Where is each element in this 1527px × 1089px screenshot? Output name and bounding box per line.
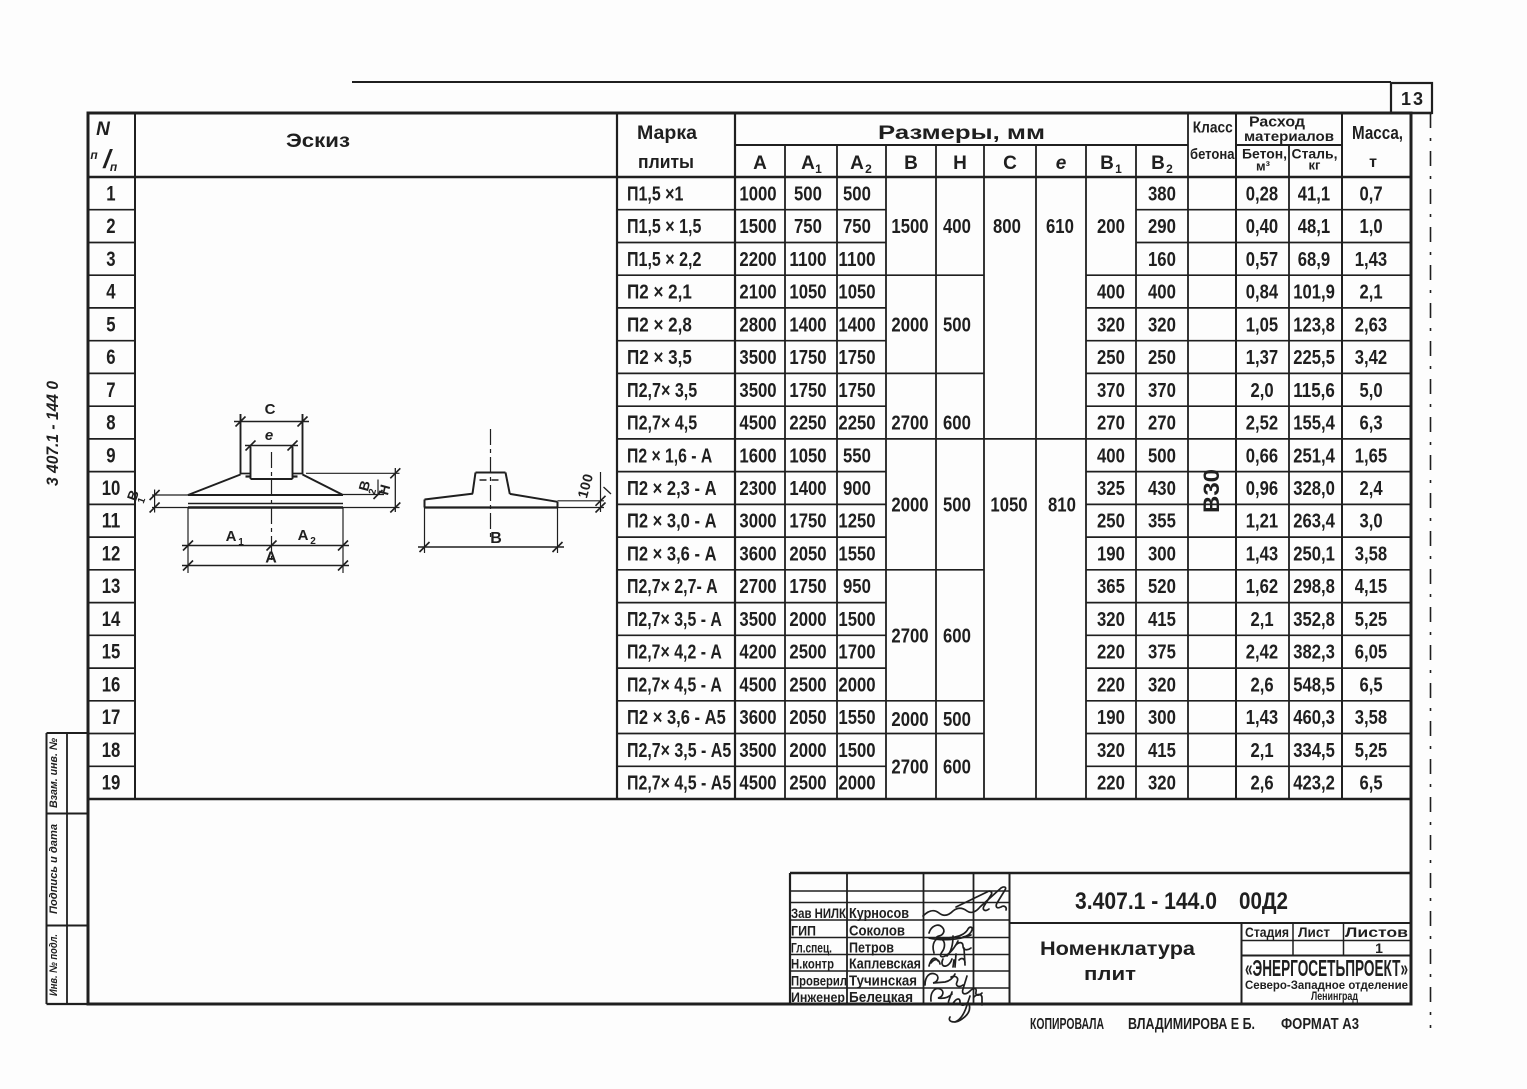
svg-text:Марка: Марка	[637, 123, 697, 144]
svg-text:2,63: 2,63	[1355, 314, 1387, 336]
svg-text:ВЛАДИМИРОВА Е Б.: ВЛАДИМИРОВА Е Б.	[1128, 1016, 1255, 1033]
svg-text:6,3: 6,3	[1360, 413, 1383, 435]
svg-text:П2,7× 3,5: П2,7× 3,5	[627, 380, 697, 402]
svg-text:1750: 1750	[789, 576, 826, 598]
svg-text:П2 × 3,0 - А: П2 × 3,0 - А	[627, 511, 717, 533]
svg-text:2000: 2000	[789, 609, 826, 631]
svg-text:250: 250	[1148, 347, 1176, 369]
svg-text:8: 8	[106, 412, 116, 435]
svg-text:П2 × 3,5: П2 × 3,5	[627, 347, 692, 369]
svg-text:400: 400	[943, 216, 971, 238]
svg-text:423,2: 423,2	[1293, 773, 1335, 795]
svg-text:7: 7	[106, 379, 115, 402]
svg-text:3,58: 3,58	[1355, 544, 1387, 566]
svg-text:материалов: материалов	[1244, 129, 1334, 144]
svg-text:17: 17	[102, 706, 121, 729]
svg-text:5: 5	[106, 313, 116, 336]
svg-text:Листов: Листов	[1345, 924, 1408, 940]
svg-text:1500: 1500	[838, 740, 875, 762]
svg-text:382,3: 382,3	[1293, 642, 1335, 664]
svg-text:320: 320	[1097, 609, 1125, 631]
svg-text:Инженер: Инженер	[791, 989, 845, 1005]
svg-text:12: 12	[102, 543, 121, 566]
svg-text:2,1: 2,1	[1251, 740, 1274, 762]
svg-text:П2,7× 4,5 - А: П2,7× 4,5 - А	[627, 674, 722, 696]
svg-text:4500: 4500	[739, 674, 776, 696]
svg-text:251,4: 251,4	[1293, 445, 1335, 467]
svg-text:750: 750	[794, 216, 822, 238]
svg-text:41,1: 41,1	[1298, 183, 1330, 205]
svg-text:Каплевская: Каплевская	[849, 956, 921, 973]
svg-text:П2,7× 3,5 - А5: П2,7× 3,5 - А5	[627, 740, 731, 762]
svg-text:2000: 2000	[838, 773, 875, 795]
svg-text:14: 14	[102, 608, 121, 631]
svg-text:6,5: 6,5	[1360, 773, 1383, 795]
svg-text:Белецкая: Белецкая	[849, 989, 913, 1006]
svg-text:300: 300	[1148, 544, 1176, 566]
svg-text:2,4: 2,4	[1360, 478, 1384, 500]
svg-text:2000: 2000	[789, 740, 826, 762]
svg-text:160: 160	[1148, 249, 1176, 271]
svg-text:1750: 1750	[838, 380, 875, 402]
svg-text:250: 250	[1097, 511, 1125, 533]
svg-text:0,84: 0,84	[1246, 282, 1279, 304]
svg-text:3500: 3500	[739, 380, 776, 402]
svg-text:2,6: 2,6	[1251, 773, 1274, 795]
svg-text:460,3: 460,3	[1293, 707, 1335, 729]
svg-text:550: 550	[843, 445, 871, 467]
svg-text:П2 × 3,6 - А: П2 × 3,6 - А	[627, 544, 717, 566]
svg-text:2: 2	[310, 536, 316, 547]
svg-text:19: 19	[102, 772, 121, 795]
svg-text:Соколов: Соколов	[849, 923, 905, 940]
svg-text:220: 220	[1097, 773, 1125, 795]
svg-text:2100: 2100	[739, 282, 776, 304]
svg-text:А: А	[226, 528, 237, 545]
svg-text:КОПИРОВАЛА: КОПИРОВАЛА	[1030, 1016, 1104, 1033]
svg-text:370: 370	[1097, 380, 1125, 402]
svg-text:П2,7× 2,7- А: П2,7× 2,7- А	[627, 576, 718, 598]
svg-text:1: 1	[1115, 162, 1122, 176]
svg-text:3: 3	[106, 248, 115, 271]
svg-text:0,40: 0,40	[1246, 216, 1278, 238]
svg-text:П2 × 2,3 - А: П2 × 2,3 - А	[627, 478, 717, 500]
svg-text:13: 13	[102, 575, 121, 598]
svg-text:415: 415	[1148, 740, 1176, 762]
svg-text:2700: 2700	[739, 576, 776, 598]
svg-text:плиты: плиты	[638, 152, 694, 172]
svg-text:ГИП: ГИП	[791, 923, 816, 939]
svg-text:1: 1	[1375, 940, 1383, 956]
svg-text:11: 11	[102, 510, 121, 533]
svg-text:1,21: 1,21	[1246, 511, 1278, 533]
svg-text:2700: 2700	[891, 413, 928, 435]
svg-text:5,25: 5,25	[1355, 609, 1387, 631]
svg-text:320: 320	[1148, 674, 1176, 696]
svg-text:400: 400	[1097, 445, 1125, 467]
svg-text:1750: 1750	[838, 347, 875, 369]
svg-text:2,1: 2,1	[1251, 609, 1274, 631]
svg-text:270: 270	[1148, 413, 1176, 435]
svg-text:А: А	[850, 153, 864, 174]
svg-text:355: 355	[1148, 511, 1176, 533]
svg-text:2800: 2800	[739, 314, 776, 336]
svg-text:1400: 1400	[789, 314, 826, 336]
svg-text:П2,7× 4,5 - А5: П2,7× 4,5 - А5	[627, 773, 731, 795]
svg-text:190: 190	[1097, 707, 1125, 729]
svg-text:е: е	[1056, 153, 1067, 174]
svg-text:1500: 1500	[891, 216, 928, 238]
svg-text:Размеры, мм: Размеры, мм	[878, 123, 1045, 144]
svg-text:бетона: бетона	[1190, 147, 1235, 163]
svg-text:Зав НИЛК: Зав НИЛК	[791, 905, 846, 921]
svg-text:320: 320	[1148, 314, 1176, 336]
svg-text:1050: 1050	[789, 445, 826, 467]
svg-text:100: 100	[574, 472, 596, 500]
svg-text:Подпись и дата: Подпись и дата	[48, 824, 60, 914]
svg-text:610: 610	[1046, 216, 1074, 238]
svg-text:Класс: Класс	[1193, 120, 1233, 137]
svg-text:Стадия: Стадия	[1245, 924, 1289, 940]
svg-text:2,6: 2,6	[1251, 674, 1274, 696]
svg-text:2500: 2500	[789, 642, 826, 664]
svg-text:375: 375	[1148, 642, 1176, 664]
svg-text:548,5: 548,5	[1293, 674, 1335, 696]
svg-text:430: 430	[1148, 478, 1176, 500]
svg-text:0,96: 0,96	[1246, 478, 1278, 500]
svg-text:500: 500	[943, 494, 971, 516]
svg-text:225,5: 225,5	[1293, 347, 1335, 369]
svg-text:1: 1	[136, 496, 148, 505]
svg-text:Проверил: Проверил	[791, 973, 847, 989]
svg-text:А: А	[753, 153, 767, 174]
svg-text:5,25: 5,25	[1355, 740, 1387, 762]
svg-text:1: 1	[815, 162, 822, 176]
svg-text:600: 600	[943, 756, 971, 778]
svg-text:3000: 3000	[739, 511, 776, 533]
svg-text:1400: 1400	[789, 478, 826, 500]
svg-text:С: С	[1003, 153, 1017, 174]
svg-text:Эскиз: Эскиз	[286, 131, 350, 152]
svg-text:1,05: 1,05	[1246, 314, 1278, 336]
svg-text:2300: 2300	[739, 478, 776, 500]
svg-text:2000: 2000	[891, 314, 928, 336]
svg-text:6: 6	[106, 346, 115, 369]
svg-text:4: 4	[106, 281, 116, 304]
svg-text:1,43: 1,43	[1355, 249, 1387, 271]
svg-text:4200: 4200	[739, 642, 776, 664]
svg-text:Инв. № подл.: Инв. № подл.	[48, 934, 60, 996]
svg-text:400: 400	[1148, 282, 1176, 304]
svg-text:П2 × 1,6 - А: П2 × 1,6 - А	[627, 445, 712, 467]
svg-text:ФОРМАТ А3: ФОРМАТ А3	[1281, 1016, 1359, 1033]
svg-text:10: 10	[102, 477, 121, 500]
svg-text:В30: В30	[1199, 469, 1224, 513]
svg-text:м³: м³	[1256, 159, 1271, 174]
svg-text:1700: 1700	[838, 642, 875, 664]
svg-text:500: 500	[794, 183, 822, 205]
svg-text:0,7: 0,7	[1360, 183, 1383, 205]
svg-text:2000: 2000	[838, 674, 875, 696]
svg-text:500: 500	[843, 183, 871, 205]
svg-text:220: 220	[1097, 674, 1125, 696]
svg-text:365: 365	[1097, 576, 1125, 598]
svg-text:190: 190	[1097, 544, 1125, 566]
svg-text:68,9: 68,9	[1298, 249, 1330, 271]
svg-text:А: А	[801, 153, 815, 174]
svg-text:750: 750	[843, 216, 871, 238]
svg-text:2250: 2250	[789, 413, 826, 435]
svg-text:6,05: 6,05	[1355, 642, 1387, 664]
svg-text:3 407.1 - 144 0: 3 407.1 - 144 0	[43, 381, 62, 486]
svg-text:п: п	[110, 160, 118, 174]
svg-text:0,28: 0,28	[1246, 183, 1278, 205]
svg-text:1400: 1400	[838, 314, 875, 336]
svg-text:2500: 2500	[789, 674, 826, 696]
svg-text:2250: 2250	[838, 413, 875, 435]
svg-text:48,1: 48,1	[1298, 216, 1330, 238]
svg-text:415: 415	[1148, 609, 1176, 631]
svg-text:С: С	[265, 401, 276, 418]
svg-text:0,66: 0,66	[1246, 445, 1278, 467]
svg-text:1: 1	[238, 537, 244, 548]
svg-text:2: 2	[865, 162, 872, 176]
svg-text:101,9: 101,9	[1293, 282, 1335, 304]
svg-text:1600: 1600	[739, 445, 776, 467]
svg-text:1050: 1050	[789, 282, 826, 304]
svg-text:6,5: 6,5	[1360, 674, 1383, 696]
svg-text:320: 320	[1097, 314, 1125, 336]
svg-text:П1,5 × 1,5: П1,5 × 1,5	[627, 216, 701, 238]
svg-text:1550: 1550	[838, 544, 875, 566]
svg-text:1750: 1750	[789, 380, 826, 402]
svg-text:600: 600	[943, 413, 971, 435]
svg-text:1,43: 1,43	[1246, 544, 1278, 566]
svg-text:А: А	[265, 550, 277, 567]
svg-text:13: 13	[1401, 89, 1425, 109]
svg-text:В: В	[490, 530, 502, 547]
svg-text:352,8: 352,8	[1293, 609, 1335, 631]
svg-text:П2 × 2,1: П2 × 2,1	[627, 282, 692, 304]
svg-text:1250: 1250	[838, 511, 875, 533]
svg-text:2,42: 2,42	[1246, 642, 1278, 664]
svg-text:334,5: 334,5	[1293, 740, 1335, 762]
svg-text:250: 250	[1097, 347, 1125, 369]
svg-text:3500: 3500	[739, 740, 776, 762]
svg-text:123,8: 123,8	[1293, 314, 1335, 336]
svg-text:Ленинград: Ленинград	[1311, 989, 1358, 1003]
svg-text:1750: 1750	[789, 511, 826, 533]
svg-text:3,0: 3,0	[1360, 511, 1383, 533]
svg-text:1050: 1050	[838, 282, 875, 304]
svg-text:1550: 1550	[838, 707, 875, 729]
svg-text:Масса,: Масса,	[1352, 123, 1403, 143]
svg-text:5,0: 5,0	[1360, 380, 1383, 402]
svg-text:2,0: 2,0	[1251, 380, 1274, 402]
svg-text:16: 16	[102, 673, 121, 696]
svg-text:Тучинская: Тучинская	[849, 973, 917, 990]
svg-text:4,15: 4,15	[1355, 576, 1387, 598]
svg-text:263,4: 263,4	[1293, 511, 1335, 533]
svg-text:2050: 2050	[789, 707, 826, 729]
svg-text:250,1: 250,1	[1293, 544, 1335, 566]
svg-text:1,37: 1,37	[1246, 347, 1278, 369]
svg-text:15: 15	[102, 641, 121, 664]
svg-text:В: В	[1151, 153, 1165, 174]
svg-text:2000: 2000	[891, 709, 928, 731]
svg-text:2,1: 2,1	[1360, 282, 1383, 304]
svg-text:600: 600	[943, 625, 971, 647]
svg-text:1,0: 1,0	[1360, 216, 1383, 238]
svg-text:1: 1	[106, 182, 116, 205]
svg-text:155,4: 155,4	[1293, 413, 1335, 435]
svg-text:328,0: 328,0	[1293, 478, 1335, 500]
svg-text:П1,5 × 2,2: П1,5 × 2,2	[627, 249, 701, 271]
svg-text:Номенклатура: Номенклатура	[1040, 939, 1195, 960]
svg-text:325: 325	[1097, 478, 1125, 500]
svg-text:370: 370	[1148, 380, 1176, 402]
svg-text:П2,7× 4,2 - А: П2,7× 4,2 - А	[627, 642, 722, 664]
svg-text:2200: 2200	[739, 249, 776, 271]
svg-text:1,43: 1,43	[1246, 707, 1278, 729]
svg-text:А: А	[298, 527, 309, 544]
svg-text:4500: 4500	[739, 413, 776, 435]
svg-text:плит: плит	[1084, 964, 1136, 984]
svg-text:500: 500	[1148, 445, 1176, 467]
svg-text:950: 950	[843, 576, 871, 598]
svg-text:3600: 3600	[739, 544, 776, 566]
svg-text:2050: 2050	[789, 544, 826, 566]
svg-text:П2,7× 3,5 - А: П2,7× 3,5 - А	[627, 609, 722, 631]
svg-text:П1,5 ×1: П1,5 ×1	[627, 183, 683, 205]
svg-text:2: 2	[1166, 162, 1173, 176]
svg-text:270: 270	[1097, 413, 1125, 435]
svg-text:Н: Н	[953, 153, 967, 174]
svg-text:2,52: 2,52	[1246, 413, 1278, 435]
svg-text:290: 290	[1148, 216, 1176, 238]
svg-text:2700: 2700	[891, 625, 928, 647]
svg-text:500: 500	[943, 709, 971, 731]
svg-text:1500: 1500	[838, 609, 875, 631]
svg-text:1,62: 1,62	[1246, 576, 1278, 598]
svg-text:800: 800	[993, 216, 1021, 238]
svg-text:18: 18	[102, 739, 121, 762]
svg-text:т: т	[1369, 154, 1377, 171]
svg-text:п: п	[90, 148, 98, 162]
svg-text:320: 320	[1148, 773, 1176, 795]
svg-text:1750: 1750	[789, 347, 826, 369]
svg-text:3500: 3500	[739, 347, 776, 369]
svg-text:1100: 1100	[789, 249, 826, 271]
svg-text:3.407.1 - 144.0: 3.407.1 - 144.0	[1075, 888, 1217, 915]
svg-text:3,42: 3,42	[1355, 347, 1387, 369]
svg-text:кг: кг	[1309, 158, 1322, 173]
svg-text:Гл.спец.: Гл.спец.	[791, 940, 832, 956]
svg-text:3600: 3600	[739, 707, 776, 729]
svg-text:3500: 3500	[739, 609, 776, 631]
svg-text:115,6: 115,6	[1293, 380, 1335, 402]
svg-text:900: 900	[843, 478, 871, 500]
svg-text:1000: 1000	[739, 183, 776, 205]
svg-text:200: 200	[1097, 216, 1125, 238]
svg-text:3,58: 3,58	[1355, 707, 1387, 729]
svg-text:П2,7× 4,5: П2,7× 4,5	[627, 413, 697, 435]
svg-text:00Д2: 00Д2	[1239, 888, 1288, 915]
svg-text:2: 2	[106, 215, 115, 238]
svg-text:320: 320	[1097, 740, 1125, 762]
svg-text:4500: 4500	[739, 773, 776, 795]
svg-text:400: 400	[1097, 282, 1125, 304]
svg-text:П2 × 3,6 - А5: П2 × 3,6 - А5	[627, 707, 726, 729]
svg-text:380: 380	[1148, 183, 1176, 205]
svg-text:810: 810	[1048, 494, 1076, 516]
svg-text:Курносов: Курносов	[849, 905, 909, 922]
svg-text:220: 220	[1097, 642, 1125, 664]
svg-text:300: 300	[1148, 707, 1176, 729]
svg-text:В: В	[904, 153, 918, 174]
svg-text:N: N	[96, 119, 111, 140]
svg-text:е: е	[265, 427, 273, 444]
svg-text:2700: 2700	[891, 756, 928, 778]
svg-text:1100: 1100	[838, 249, 875, 271]
svg-text:В: В	[1100, 153, 1114, 174]
svg-text:Расход: Расход	[1249, 114, 1306, 131]
svg-text:0,57: 0,57	[1246, 249, 1278, 271]
svg-text:1500: 1500	[739, 216, 776, 238]
svg-text:500: 500	[943, 314, 971, 336]
svg-text:298,8: 298,8	[1293, 576, 1335, 598]
svg-text:2500: 2500	[789, 773, 826, 795]
svg-text:9: 9	[106, 444, 115, 467]
svg-text:2000: 2000	[891, 494, 928, 516]
svg-text:Петров: Петров	[849, 940, 894, 957]
svg-text:Взам. инв. №: Взам. инв. №	[48, 738, 60, 808]
svg-text:520: 520	[1148, 576, 1176, 598]
svg-text:1050: 1050	[990, 494, 1027, 516]
svg-text:Н.контр: Н.контр	[791, 956, 834, 972]
svg-text:П2 × 2,8: П2 × 2,8	[627, 314, 692, 336]
svg-text:Лист: Лист	[1298, 924, 1330, 940]
svg-text:1,65: 1,65	[1355, 445, 1387, 467]
